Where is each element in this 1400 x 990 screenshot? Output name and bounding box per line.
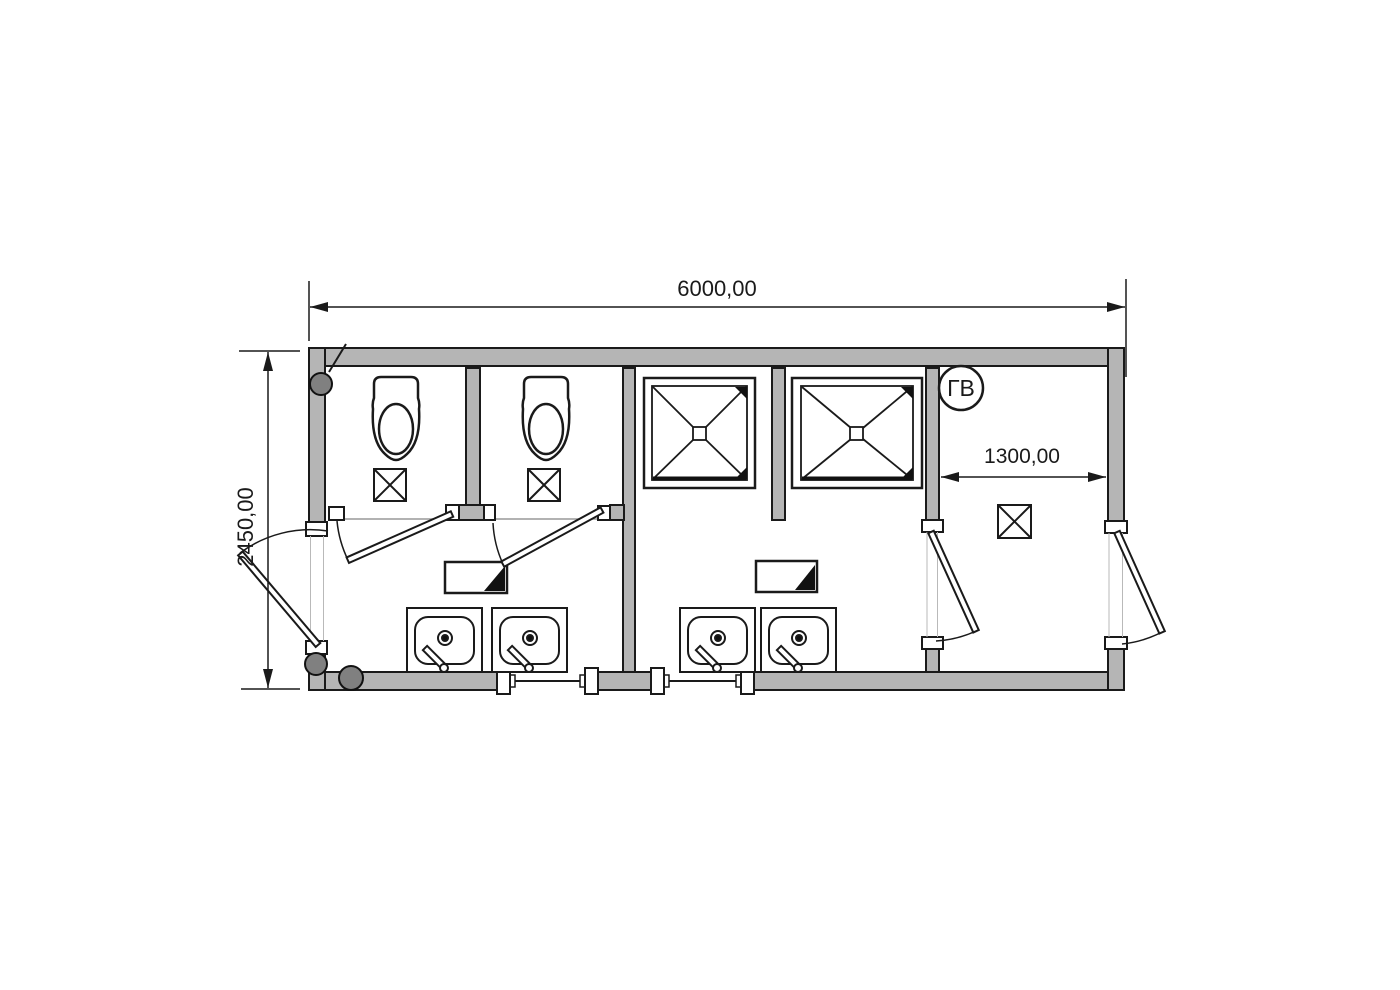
sink-1 [407,608,482,672]
door-stall-2 [493,507,603,566]
jamb-stall1-left [329,507,344,520]
jamb-interior-door-top [922,520,943,532]
overall-width-text: 6000,00 [677,276,757,301]
dimension-right-room [941,472,1106,482]
sinks [407,608,836,672]
arrow-down [263,669,273,688]
door-leaf [501,507,603,566]
shower-drain [850,427,863,440]
slope-arrow [901,387,913,399]
wall-right-upper [1108,348,1124,521]
arrow-right [1088,472,1106,482]
sink-2 [492,608,567,672]
jamb-bottom-3 [651,668,664,694]
wall-right-lower [1108,648,1124,690]
arrow-right [1107,302,1125,312]
hot-water-riser-text: ГВ [947,375,975,401]
wall-bottom-right [754,672,1124,690]
floor-box-stall2 [528,469,560,501]
jamb-stall2-gray [610,505,624,520]
shower-drain [693,427,706,440]
jamb-stall-partition-gray [459,505,484,520]
arrow-left [310,302,328,312]
wall-bottom-left [309,672,497,690]
mirror-left [445,562,507,593]
sink-3 [680,608,755,672]
floor-plan-canvas: ГВ 6000,00 2450,00 1300,00 [0,0,1400,990]
door-exterior-right [1114,531,1165,644]
door-swing-arc [493,523,503,564]
overall-depth-text: 2450,00 [233,487,258,567]
right-room-width-text: 1300,00 [984,445,1060,468]
jamb-bottom-2 [585,668,598,694]
wall-bottom-middle [598,672,651,690]
sink-4 [761,608,836,672]
toilet-1 [373,377,420,460]
riser-bottom-left-2 [339,666,363,690]
floor-box-stall1 [374,469,406,501]
wall-right-room-upper [926,368,939,520]
door-swing-arc [337,521,348,560]
door-leaf [928,531,978,633]
wall-right-room-lower [926,648,939,672]
toilet-2 [523,377,570,460]
shower-tray-1 [644,378,755,488]
jamb-interior-door-bottom [922,637,943,649]
arrow-left [941,472,959,482]
wall-stall-partition [466,368,480,506]
toilet-bowl [529,404,563,454]
shower-tray-2 [792,378,922,488]
riser-top-left [310,373,332,395]
door-leaf [1114,531,1165,634]
riser-bottom-left-1 [305,653,327,675]
floor-plan-drawing: ГВ 6000,00 2450,00 1300,00 [0,0,1400,990]
wall-top [309,348,1124,366]
arrow-up [263,352,273,371]
door-interior-right-room [928,531,978,641]
mirror-right [756,561,817,592]
jamb-right-door-bottom [1105,637,1127,649]
hot-water-riser-symbol: ГВ [939,366,983,410]
floor-drain-right-room [998,505,1031,538]
slope-arrow [901,467,913,479]
toilet-bowl [379,404,413,454]
jamb-right-door-top [1105,521,1127,533]
wall-shower-divider-stub [772,368,785,520]
